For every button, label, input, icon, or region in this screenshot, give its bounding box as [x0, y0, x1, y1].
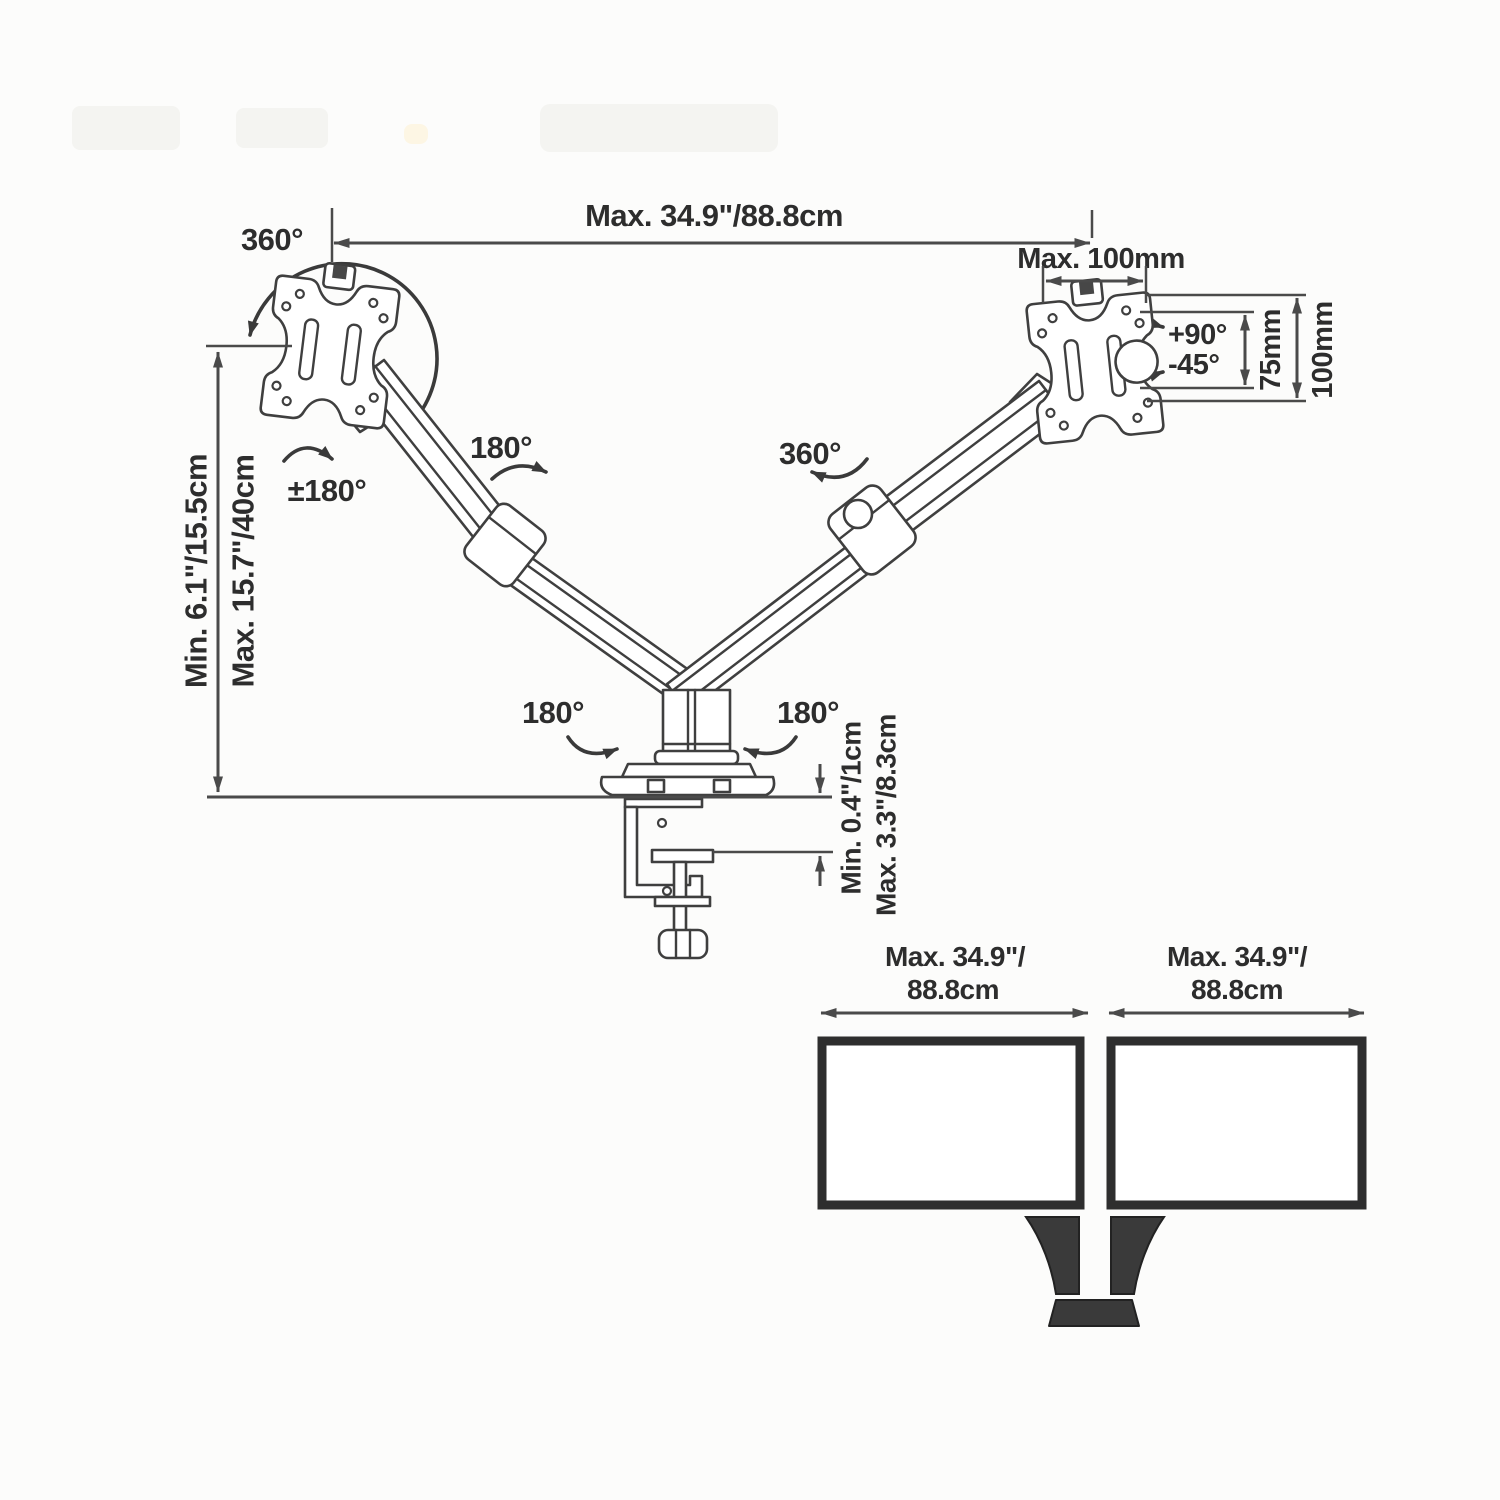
monitor-left-span-line2: 88.8cm: [907, 974, 999, 1005]
left-lower-arm-linkage-line: [510, 553, 702, 690]
clamp-max-label: Max. 3.3"/8.3cm: [871, 714, 902, 916]
clamp-screw-hole: [658, 819, 666, 827]
vesa-100-label: 100mm: [1307, 301, 1339, 398]
right-upper-arm-linkage-line: [874, 390, 1046, 520]
monitor-right-outline: [1111, 1041, 1362, 1205]
clamp-knob: [659, 930, 707, 958]
rotate-180-arc-left-arm: [492, 466, 546, 479]
clamp-washer: [655, 897, 710, 906]
vesa-hole: [282, 302, 291, 311]
monitor-left-outline: [822, 1041, 1080, 1205]
watermark-blob: [72, 106, 180, 150]
base-dome-notch: [714, 780, 730, 792]
base-collar: [655, 751, 738, 764]
right-upper-arm-linkage-line: [886, 406, 1058, 536]
rotate-180-arc-base-right: [745, 737, 796, 753]
height-max-label: Max. 15.7"/40cm: [226, 455, 261, 688]
rotate-180-label-left-plate: ±180°: [288, 473, 367, 508]
vesa-hole: [1046, 409, 1055, 418]
watermark: [72, 104, 778, 152]
vesa-hole: [295, 289, 304, 298]
base-dome-lower: [601, 777, 774, 795]
tilt-up-label: +90°: [1168, 319, 1227, 351]
vesa-hole: [369, 298, 378, 307]
base-assembly: [601, 690, 774, 958]
vesa-hole: [1048, 314, 1057, 323]
vesa-hole: [369, 393, 378, 402]
right-lower-arm: [667, 544, 870, 712]
monitor-right-span-line1: Max. 34.9"/: [1167, 941, 1308, 972]
right-elbow-boss: [844, 500, 872, 528]
vesa-hole: [1122, 306, 1131, 315]
vesa-hole: [1133, 413, 1142, 422]
vesa-hole: [1038, 329, 1047, 338]
right-lower-arm-linkage-line: [672, 551, 855, 691]
watermark-blob: [236, 108, 328, 148]
height-min-label: Min. 6.1"/15.5cm: [179, 454, 214, 688]
monitor-left-span-line1: Max. 34.9"/: [885, 941, 1026, 972]
base-dome-notch: [648, 780, 664, 792]
tilt-down-label: -45°: [1168, 349, 1220, 381]
clamp-pad: [652, 850, 713, 862]
left-plate-body: [260, 275, 400, 429]
stand-right-leg: [1111, 1217, 1164, 1294]
rotate-180-arc-left-plate: [284, 448, 332, 461]
right-plate-hook-slot: [1079, 281, 1094, 295]
mount-arms: [330, 360, 1065, 712]
vesa-75-label: 75mm: [1255, 309, 1287, 391]
watermark-blob: [540, 104, 778, 152]
vesa-hole: [272, 381, 281, 390]
right-lower-arm-linkage-line: [682, 565, 865, 705]
vesa-hole: [1144, 398, 1153, 407]
vesa-hole: [356, 406, 365, 415]
base-dome-upper: [622, 764, 756, 777]
monitor-footprint: Max. 34.9"/ 88.8cm Max. 34.9"/ 88.8cm: [821, 941, 1364, 1326]
swivel-360-label-left-plate: 360°: [241, 222, 303, 257]
monitor-right-span-line2: 88.8cm: [1191, 974, 1283, 1005]
clamp-min-label: Min. 0.4"/1cm: [836, 721, 867, 894]
rotate-180-label-base-right: 180°: [777, 695, 839, 730]
vesa-hole: [1059, 421, 1068, 430]
vesa-hole: [282, 397, 291, 406]
monitor-arm-spec-diagram: Max. 34.9"/88.8cm Min. 6.1"/15.5cm Max. …: [0, 0, 1500, 1500]
left-vesa-plate: [260, 257, 402, 429]
vesa-hole: [1135, 319, 1144, 328]
dimension-top-span: Max. 34.9"/88.8cm: [332, 198, 1092, 262]
vesa-hole: [379, 314, 388, 323]
right-vesa-plate: [1024, 274, 1165, 444]
rotate-180-label-base-left: 180°: [522, 695, 584, 730]
rotate-180-arc-base-left: [568, 737, 617, 753]
watermark-dot: [404, 124, 428, 144]
clamp-screw-hole: [663, 887, 671, 895]
stand-left-leg: [1026, 1217, 1079, 1294]
left-lower-arm-linkage-line: [500, 567, 692, 704]
rotate-180-label-left-arm: 180°: [470, 430, 532, 465]
stand-base: [1049, 1300, 1139, 1326]
rotate-360-label-right-elbow: 360°: [779, 436, 841, 471]
left-plate-hook-slot: [332, 265, 347, 280]
dimension-clamp: Min. 0.4"/1cm Max. 3.3"/8.3cm: [713, 714, 902, 916]
diagram-canvas: Max. 34.9"/88.8cm Min. 6.1"/15.5cm Max. …: [0, 0, 1500, 1500]
top-span-label: Max. 34.9"/88.8cm: [585, 198, 843, 233]
